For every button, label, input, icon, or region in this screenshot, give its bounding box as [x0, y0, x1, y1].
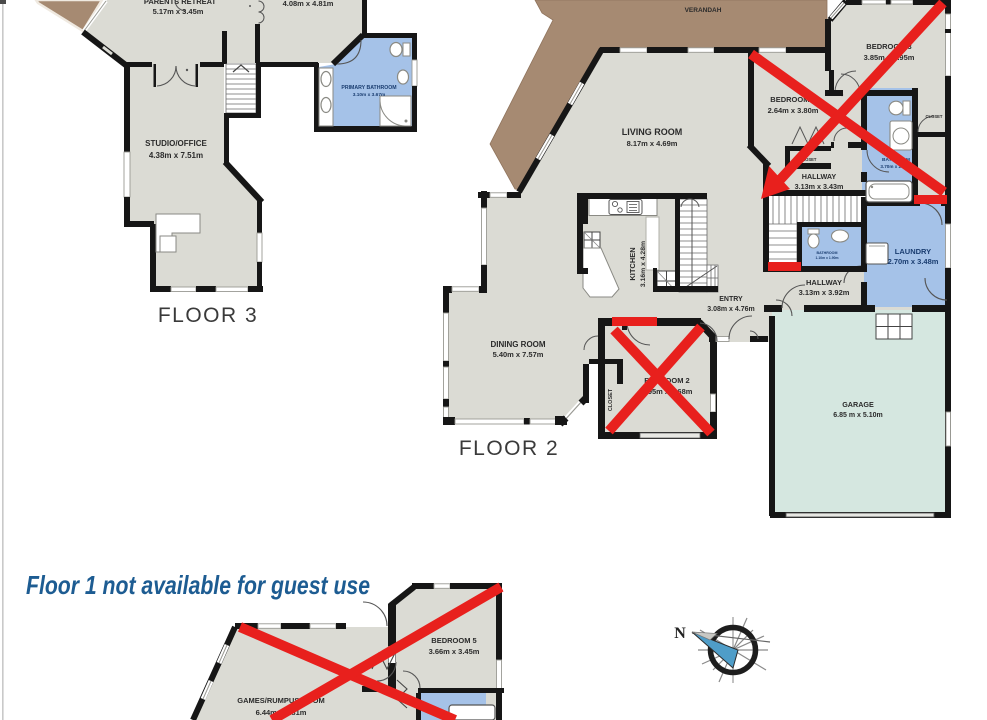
svg-text:1.10m x 1.90m: 1.10m x 1.90m — [816, 256, 839, 260]
svg-text:LIVING ROOM: LIVING ROOM — [622, 127, 683, 137]
svg-text:PRIMARY BATHROOM: PRIMARY BATHROOM — [341, 85, 396, 91]
svg-text:6.85 m x 5.10m: 6.85 m x 5.10m — [833, 412, 882, 419]
svg-text:5.40m x 7.57m: 5.40m x 7.57m — [493, 350, 544, 359]
svg-text:HALLWAY: HALLWAY — [806, 278, 842, 287]
svg-text:ENTRY: ENTRY — [719, 296, 743, 303]
svg-text:8.17m x 4.69m: 8.17m x 4.69m — [627, 139, 678, 148]
svg-text:3.16m x 4.28m: 3.16m x 4.28m — [640, 241, 647, 287]
svg-text:FLOOR 3: FLOOR 3 — [158, 304, 258, 327]
svg-text:3.66m x 3.45m: 3.66m x 3.45m — [429, 647, 480, 656]
svg-text:4.38m x 7.51m: 4.38m x 7.51m — [149, 151, 203, 160]
svg-text:DINING ROOM: DINING ROOM — [490, 340, 545, 349]
svg-text:FLOOR 2: FLOOR 2 — [459, 437, 559, 460]
svg-text:HALLWAY: HALLWAY — [802, 172, 837, 181]
svg-text:3.13m x 3.92m: 3.13m x 3.92m — [799, 288, 850, 297]
svg-text:PARENTS RETREAT: PARENTS RETREAT — [144, 0, 217, 6]
svg-text:3.10m x 3.67m: 3.10m x 3.67m — [353, 92, 386, 98]
svg-text:5.17m x 3.45m: 5.17m x 3.45m — [153, 7, 204, 16]
svg-text:4.08m x 4.81m: 4.08m x 4.81m — [283, 0, 334, 8]
svg-text:3.13m x 3.43m: 3.13m x 3.43m — [795, 182, 844, 191]
svg-text:CLOSET: CLOSET — [926, 114, 943, 119]
svg-text:GARAGE: GARAGE — [842, 400, 874, 409]
svg-text:2.70m x 3.48m: 2.70m x 3.48m — [888, 257, 939, 266]
svg-text:Floor 1 not available for gues: Floor 1 not available for guest use — [26, 570, 370, 600]
svg-text:VERANDAH: VERANDAH — [685, 7, 722, 14]
svg-text:KITCHEN: KITCHEN — [628, 247, 637, 280]
svg-text:BATHROOM: BATHROOM — [817, 251, 838, 255]
svg-text:BEDROOM 5: BEDROOM 5 — [431, 636, 476, 645]
svg-text:CLOSET: CLOSET — [608, 388, 614, 411]
svg-text:N: N — [674, 625, 686, 642]
svg-text:2.64m x 3.80m: 2.64m x 3.80m — [768, 106, 819, 115]
svg-text:STUDIO/OFFICE: STUDIO/OFFICE — [145, 139, 207, 148]
svg-text:3.08m x 4.76m: 3.08m x 4.76m — [707, 306, 754, 313]
svg-text:LAUNDRY: LAUNDRY — [895, 247, 931, 256]
